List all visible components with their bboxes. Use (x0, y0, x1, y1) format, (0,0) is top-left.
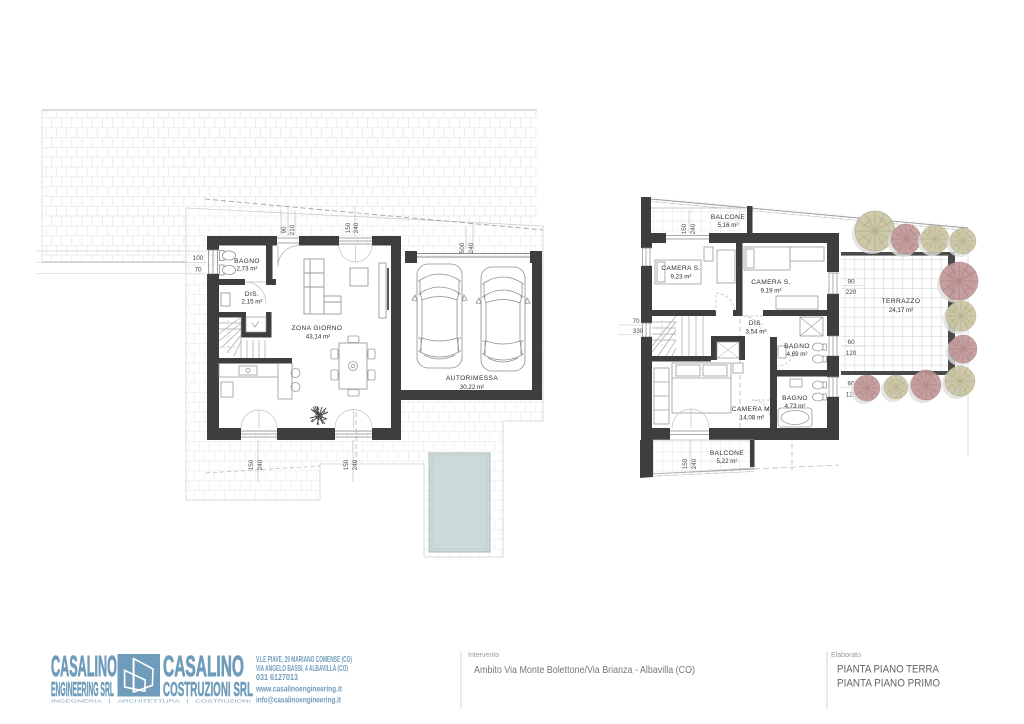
svg-text:240: 240 (257, 459, 264, 470)
svg-text:500: 500 (459, 242, 466, 253)
svg-text:ZONA GIORNO: ZONA GIORNO (292, 325, 343, 332)
svg-text:240: 240 (468, 242, 475, 253)
svg-text:BAGNO: BAGNO (234, 258, 260, 265)
svg-text:90: 90 (281, 226, 288, 234)
svg-text:Intervento: Intervento (468, 652, 499, 659)
svg-text:220: 220 (846, 289, 857, 296)
svg-text:3,54 m²: 3,54 m² (746, 329, 767, 336)
svg-text:INGEGNERIA | ARCHITETTURA: INGEGNERIA | ARCHITETTURA | COSTRUZIONI (51, 699, 251, 704)
svg-text:150: 150 (682, 458, 689, 469)
svg-text:4,73 m²: 4,73 m² (785, 403, 806, 410)
svg-text:150: 150 (248, 459, 255, 470)
svg-text:AUTORIMESSA: AUTORIMESSA (446, 375, 498, 382)
svg-text:14,08 m²: 14,08 m² (740, 415, 764, 422)
svg-text:24,17 m²: 24,17 m² (889, 307, 913, 314)
svg-text:9,23 m²: 9,23 m² (671, 274, 692, 281)
svg-text:90: 90 (847, 279, 855, 286)
svg-text:info@casalinoengineering.it: info@casalinoengineering.it (256, 696, 341, 705)
svg-text:Elaborato: Elaborato (831, 652, 861, 659)
svg-text:70: 70 (632, 318, 640, 325)
svg-text:9,19 m²: 9,19 m² (761, 288, 782, 295)
svg-text:CAMERA M.: CAMERA M. (732, 406, 773, 413)
svg-text:240: 240 (691, 458, 698, 469)
svg-text:V.LE PIAVE, 29 MARIANO COMENSE: V.LE PIAVE, 29 MARIANO COMENSE (CO) (256, 655, 352, 664)
svg-text:DIS.: DIS. (245, 291, 259, 298)
svg-text:70: 70 (194, 267, 202, 274)
svg-text:BAGNO: BAGNO (782, 395, 808, 402)
svg-text:Ambito Via Monte Bolettone/Via: Ambito Via Monte Bolettone/Via Brianza -… (474, 665, 695, 676)
svg-text:60: 60 (847, 339, 855, 346)
svg-text:CAMERA S.: CAMERA S. (751, 279, 791, 286)
svg-text:100: 100 (193, 255, 204, 262)
svg-text:031 6127013: 031 6127013 (256, 673, 298, 682)
svg-text:5,16 m²: 5,16 m² (718, 222, 739, 229)
svg-text:2,15 m²: 2,15 m² (242, 299, 263, 306)
svg-text:PIANTA PIANO TERRA: PIANTA PIANO TERRA (837, 664, 940, 676)
svg-text:TERRAZZO: TERRAZZO (882, 298, 921, 305)
svg-text:150: 150 (345, 222, 352, 233)
svg-text:210: 210 (289, 224, 296, 235)
svg-text:120: 120 (846, 350, 857, 357)
svg-text:240: 240 (352, 459, 359, 470)
svg-text:CAMERA S.: CAMERA S. (661, 265, 701, 272)
svg-text:www.casalinoengineering.it: www.casalinoengineering.it (255, 685, 342, 694)
svg-text:PIANTA PIANO PRIMO: PIANTA PIANO PRIMO (837, 678, 940, 690)
svg-text:4,69 m²: 4,69 m² (787, 351, 808, 358)
svg-text:240: 240 (690, 223, 697, 234)
svg-text:150: 150 (681, 223, 688, 234)
svg-text:150: 150 (343, 459, 350, 470)
svg-text:2,73 m²: 2,73 m² (237, 266, 258, 273)
svg-text:DIS.: DIS. (749, 320, 763, 327)
svg-text:BALCONE: BALCONE (710, 450, 745, 457)
svg-text:43,14 m²: 43,14 m² (306, 334, 330, 341)
svg-text:VIA ANGELO BASSI, 4 ALBAVILLA: VIA ANGELO BASSI, 4 ALBAVILLA (CO) (256, 664, 348, 673)
svg-text:240: 240 (353, 222, 360, 233)
svg-text:5,22 m²: 5,22 m² (717, 458, 738, 465)
svg-text:BALCONE: BALCONE (711, 214, 746, 221)
svg-text:330: 330 (633, 328, 644, 335)
svg-text:30,22 m²: 30,22 m² (460, 384, 484, 391)
svg-text:BAGNO: BAGNO (784, 343, 810, 350)
